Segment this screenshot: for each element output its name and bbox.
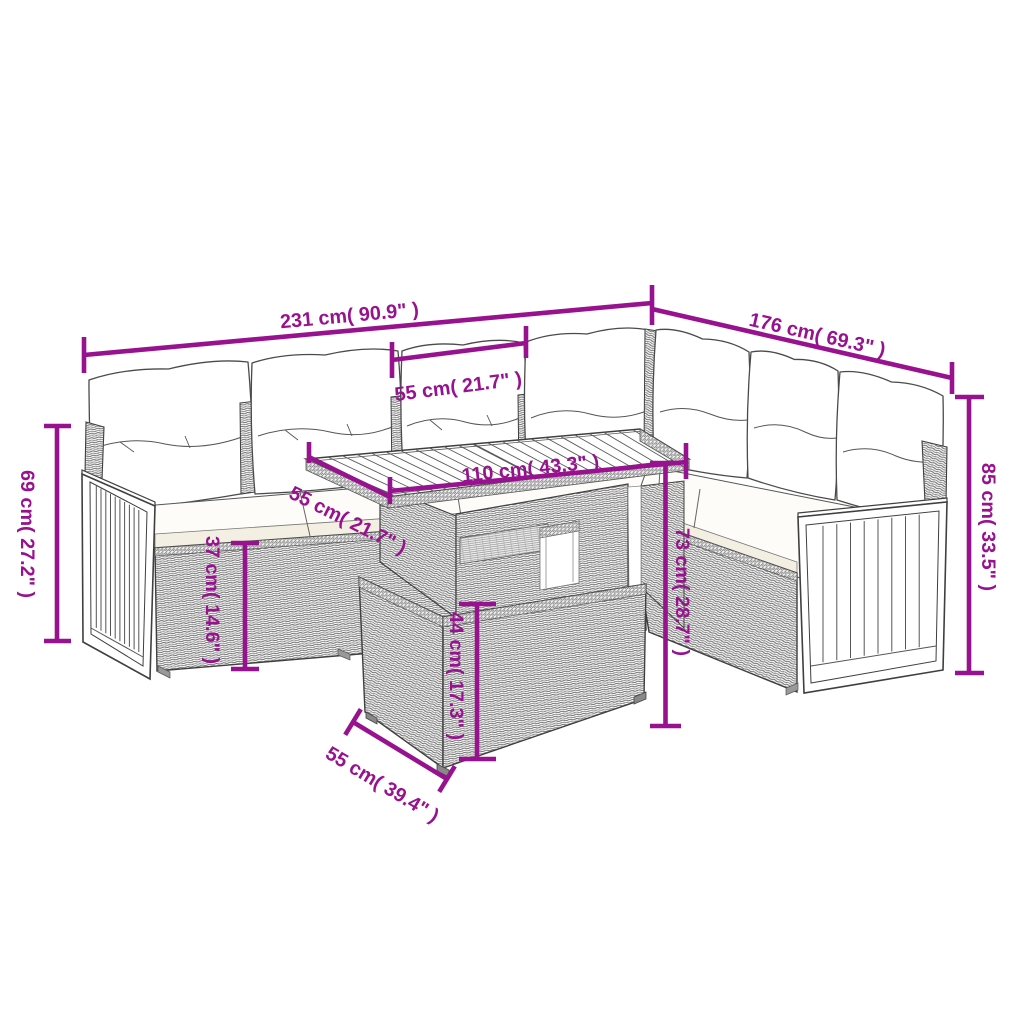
svg-text:44 cm( 17.3" ): 44 cm( 17.3" ) (445, 612, 467, 740)
svg-text:73 cm( 28.7" ): 73 cm( 28.7" ) (671, 528, 693, 656)
svg-text:85 cm( 33.5" ): 85 cm( 33.5" ) (977, 463, 999, 591)
svg-text:69 cm( 27.2" ): 69 cm( 27.2" ) (16, 470, 38, 598)
svg-text:37 cm( 14.6" ): 37 cm( 14.6" ) (201, 536, 223, 664)
